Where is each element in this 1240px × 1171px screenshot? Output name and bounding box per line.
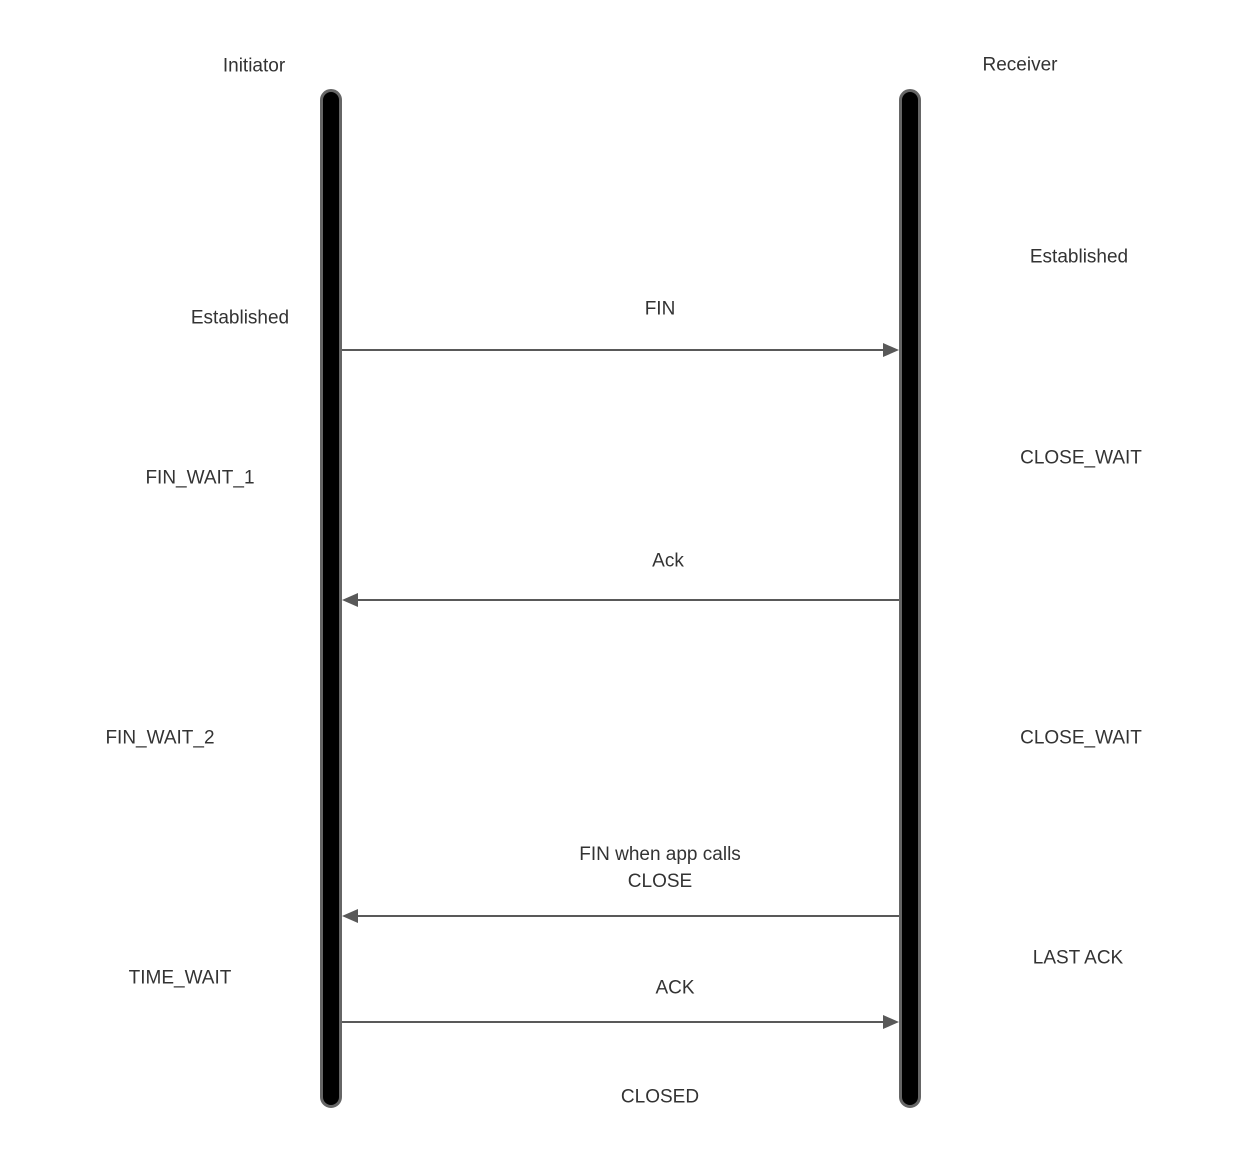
- fin-arrow: [342, 343, 899, 357]
- receiver-state-close-wait-2: CLOSE_WAIT: [1020, 725, 1142, 752]
- last-ack-arrow: [342, 1015, 899, 1029]
- message-label-ack: Ack: [652, 548, 684, 575]
- fin-close-arrow: [342, 909, 899, 923]
- actor-label-initiator: Initiator: [223, 53, 285, 80]
- message-line: Ack: [652, 548, 684, 575]
- initiator-state-established: Established: [191, 305, 289, 332]
- message-label-fin-when-app-calls-close: FIN when app calls CLOSE: [579, 841, 741, 895]
- initiator-state-fin-wait-1: FIN_WAIT_1: [145, 465, 254, 492]
- final-state-closed: CLOSED: [621, 1084, 699, 1111]
- receiver-state-last-ack: LAST ACK: [1033, 945, 1123, 972]
- message-line: FIN: [645, 296, 676, 323]
- arrowhead-left-icon: [342, 909, 358, 923]
- sequence-diagram-canvas: Initiator Receiver Established FIN_WAIT_…: [0, 0, 1240, 1171]
- message-line: CLOSE: [579, 868, 741, 895]
- receiver-lifeline-bar: [899, 89, 921, 1108]
- initiator-lifeline-bar: [320, 89, 342, 1108]
- arrow-shaft: [342, 349, 885, 351]
- message-label-fin: FIN: [645, 296, 676, 323]
- arrowhead-right-icon: [883, 343, 899, 357]
- arrowhead-left-icon: [342, 593, 358, 607]
- receiver-state-established: Established: [1030, 244, 1128, 271]
- receiver-state-close-wait-1: CLOSE_WAIT: [1020, 445, 1142, 472]
- arrowhead-right-icon: [883, 1015, 899, 1029]
- message-line: ACK: [655, 975, 694, 1002]
- arrow-shaft: [342, 1021, 885, 1023]
- initiator-state-time-wait: TIME_WAIT: [129, 965, 232, 992]
- ack-arrow: [342, 593, 899, 607]
- arrow-shaft: [356, 915, 899, 917]
- message-line: FIN when app calls: [579, 841, 741, 868]
- arrow-shaft: [356, 599, 899, 601]
- actor-label-receiver: Receiver: [983, 52, 1058, 79]
- initiator-state-fin-wait-2: FIN_WAIT_2: [105, 725, 214, 752]
- message-label-last-ack: ACK: [655, 975, 694, 1002]
